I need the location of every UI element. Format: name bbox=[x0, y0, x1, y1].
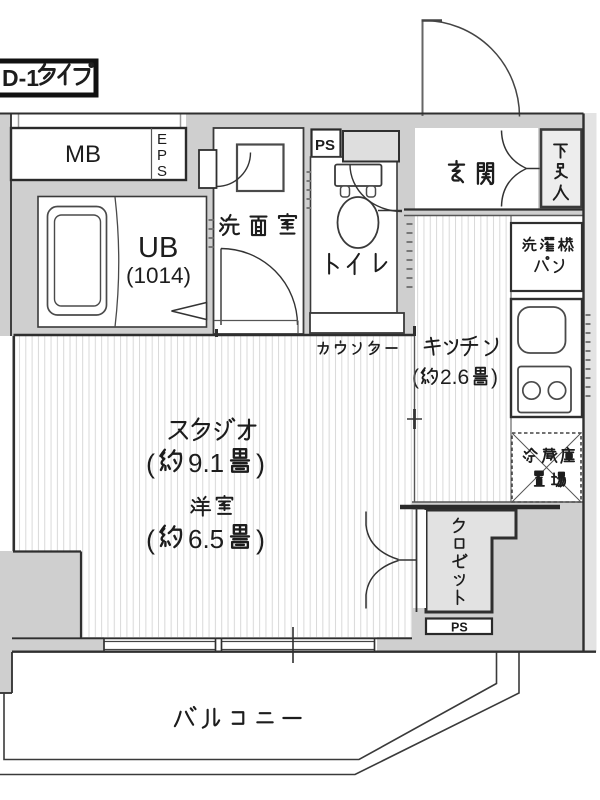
svg-text:): ) bbox=[491, 366, 498, 389]
svg-text:9.1: 9.1 bbox=[188, 448, 224, 478]
svg-text:E: E bbox=[157, 131, 167, 148]
svg-text:2.6: 2.6 bbox=[440, 366, 469, 389]
svg-text:P: P bbox=[157, 147, 167, 164]
svg-text:(: ( bbox=[146, 449, 155, 479]
svg-text:PS: PS bbox=[451, 621, 468, 635]
svg-text:D-1: D-1 bbox=[2, 65, 39, 91]
svg-text:(: ( bbox=[412, 366, 419, 389]
svg-text:(1014): (1014) bbox=[126, 263, 191, 288]
svg-text:MB: MB bbox=[65, 141, 101, 168]
svg-text:): ) bbox=[256, 449, 265, 479]
svg-text:): ) bbox=[256, 525, 265, 555]
svg-text:(: ( bbox=[146, 525, 155, 555]
svg-text:6.5: 6.5 bbox=[188, 524, 224, 554]
svg-text:PS: PS bbox=[315, 137, 335, 154]
svg-text:S: S bbox=[157, 163, 167, 180]
svg-text:UB: UB bbox=[138, 232, 178, 264]
